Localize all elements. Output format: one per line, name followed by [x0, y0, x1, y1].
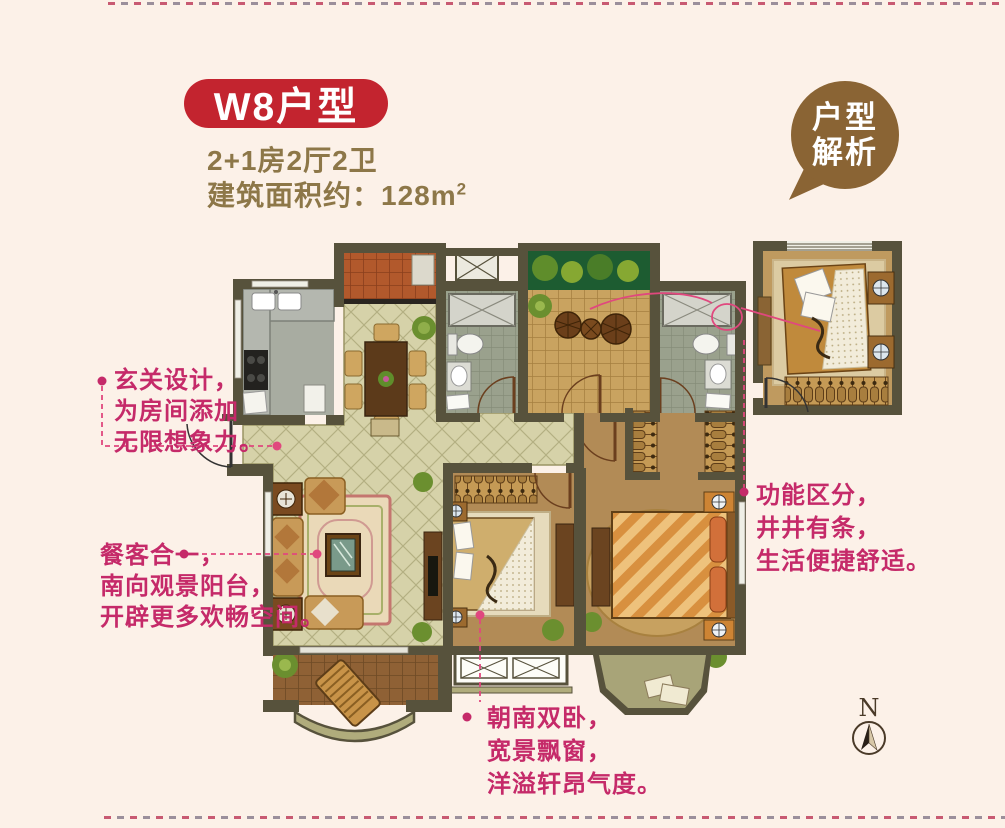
floorplan-page: W8户型 2+1房2厅2卫 建筑面积约：128m2 户型 解析 [0, 0, 1005, 828]
annotation-function: 功能区分， 井井有条， 生活便捷舒适。 [756, 478, 931, 577]
compass-n-label: N [859, 694, 880, 722]
bedroom-detail-inset [758, 251, 894, 412]
bay-window-middle [450, 652, 572, 693]
compass: N [853, 694, 885, 754]
annotation-bedroom: 朝南双卧， 宽景飘窗， 洋溢轩昂气度。 [487, 701, 662, 800]
annotation-entry: 玄关设计， 为房间添加 无限想象力。 [114, 364, 264, 457]
annotation-dining: 餐客合一， 南向观景阳台， 开辟更多欢畅空间。 [100, 539, 325, 632]
